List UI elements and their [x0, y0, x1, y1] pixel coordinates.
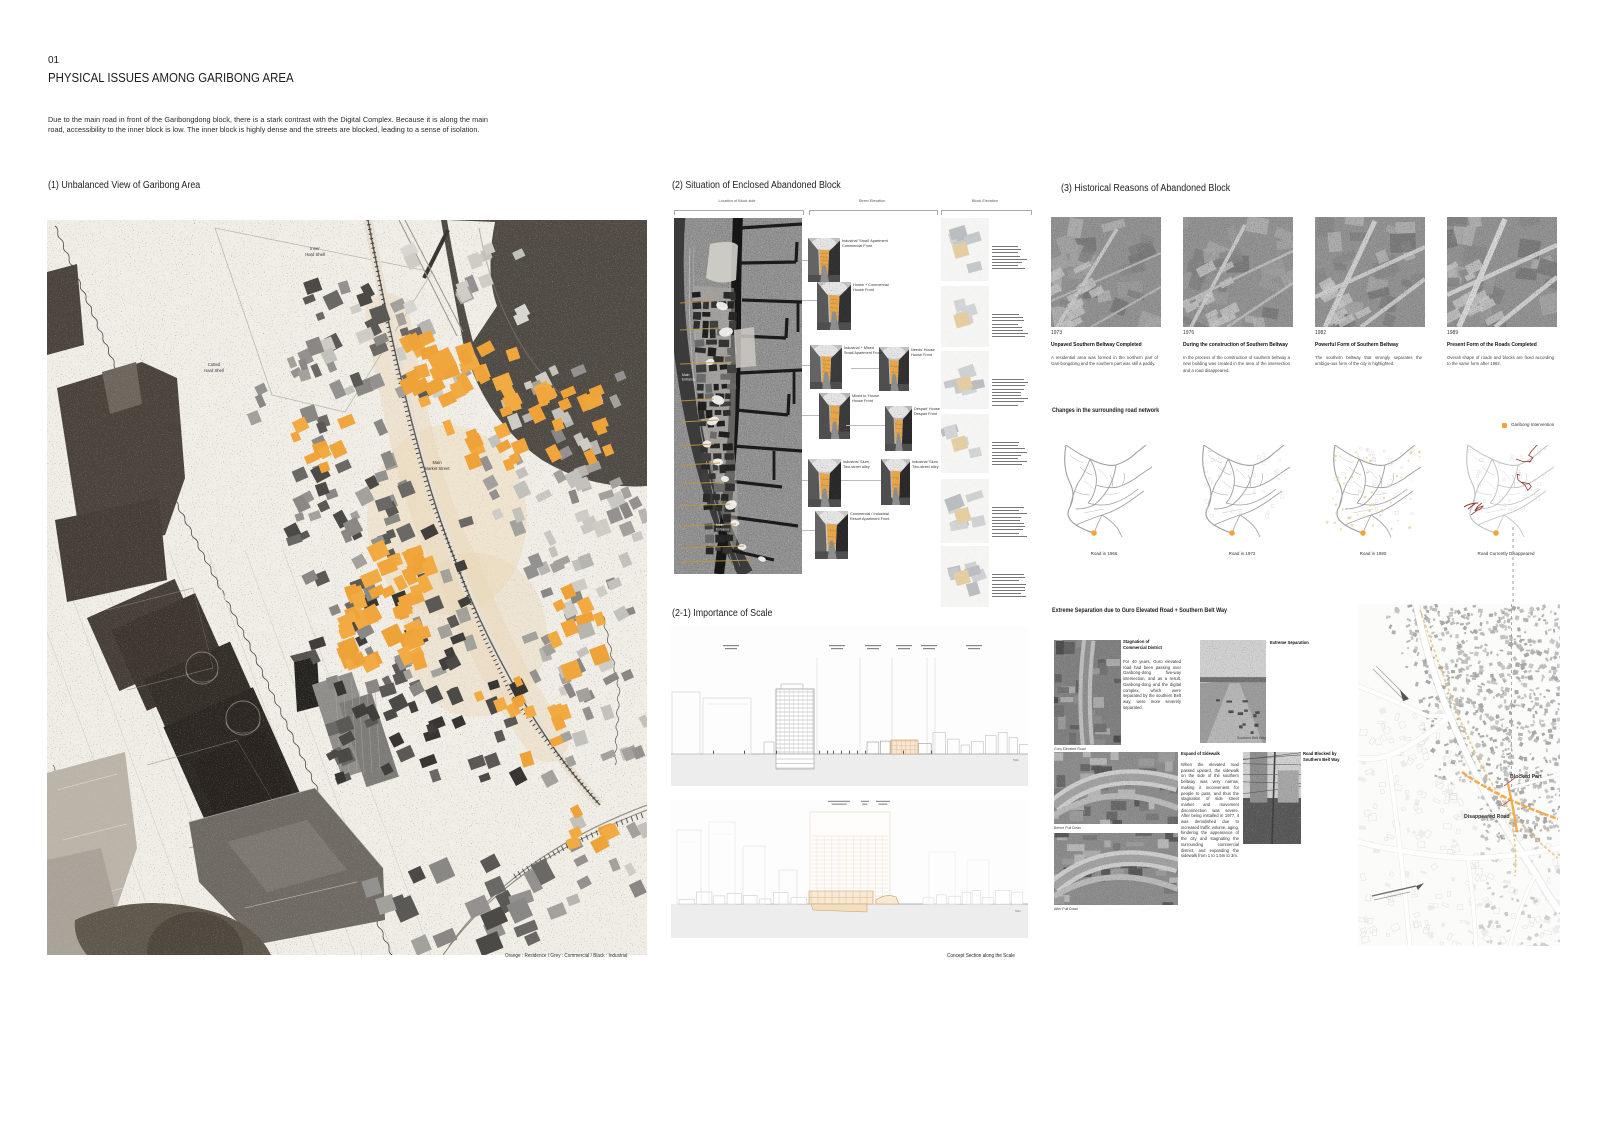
svg-text:Hard Shell: Hard Shell: [305, 252, 325, 257]
svg-text:Disappeared Road: Disappeared Road: [1464, 814, 1510, 820]
svg-text:Entrance: Entrance: [716, 528, 730, 532]
svg-text:Main: Main: [432, 460, 442, 465]
svg-text:Market Street: Market Street: [424, 466, 450, 471]
svg-text:Blocked Part: Blocked Part: [1510, 774, 1542, 780]
svg-text:Cutted: Cutted: [208, 362, 221, 367]
svg-text:50m: 50m: [1013, 758, 1019, 762]
svg-text:Inner: Inner: [310, 246, 320, 251]
svg-text:Hard Shell: Hard Shell: [204, 368, 224, 373]
svg-text:50m: 50m: [1015, 909, 1021, 913]
svg-text:Main: Main: [682, 373, 689, 377]
svg-text:Main: Main: [716, 523, 723, 527]
svg-text:Entrance: Entrance: [682, 378, 696, 382]
